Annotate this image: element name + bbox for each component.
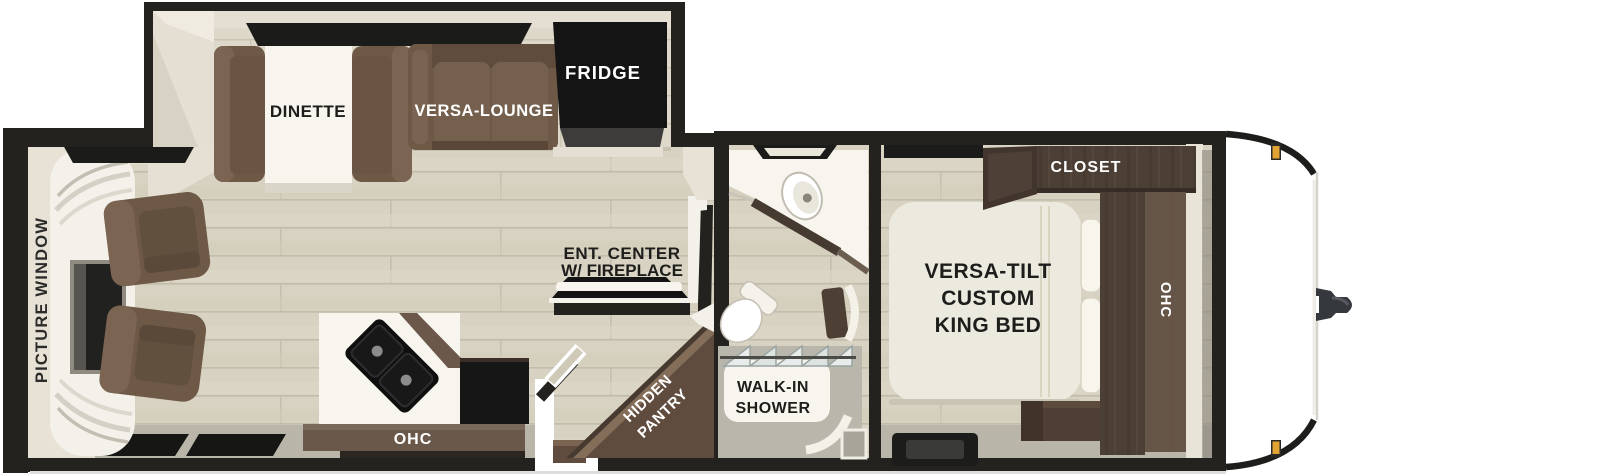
svg-text:W/ FIREPLACE: W/ FIREPLACE <box>561 261 683 280</box>
svg-text:OHC: OHC <box>1157 282 1174 318</box>
svg-text:FRIDGE: FRIDGE <box>565 62 641 83</box>
svg-text:KING BED: KING BED <box>935 314 1042 337</box>
svg-text:VERSA-LOUNGE: VERSA-LOUNGE <box>415 102 554 120</box>
svg-text:DINETTE: DINETTE <box>270 102 346 121</box>
svg-text:SHOWER: SHOWER <box>736 400 811 417</box>
svg-text:CUSTOM: CUSTOM <box>941 287 1035 310</box>
svg-text:OHC: OHC <box>394 431 433 448</box>
svg-text:CLOSET: CLOSET <box>1051 159 1122 176</box>
svg-text:PICTURE WINDOW: PICTURE WINDOW <box>33 217 51 383</box>
svg-text:WALK-IN: WALK-IN <box>737 379 809 396</box>
svg-text:VERSA-TILT: VERSA-TILT <box>924 260 1051 283</box>
